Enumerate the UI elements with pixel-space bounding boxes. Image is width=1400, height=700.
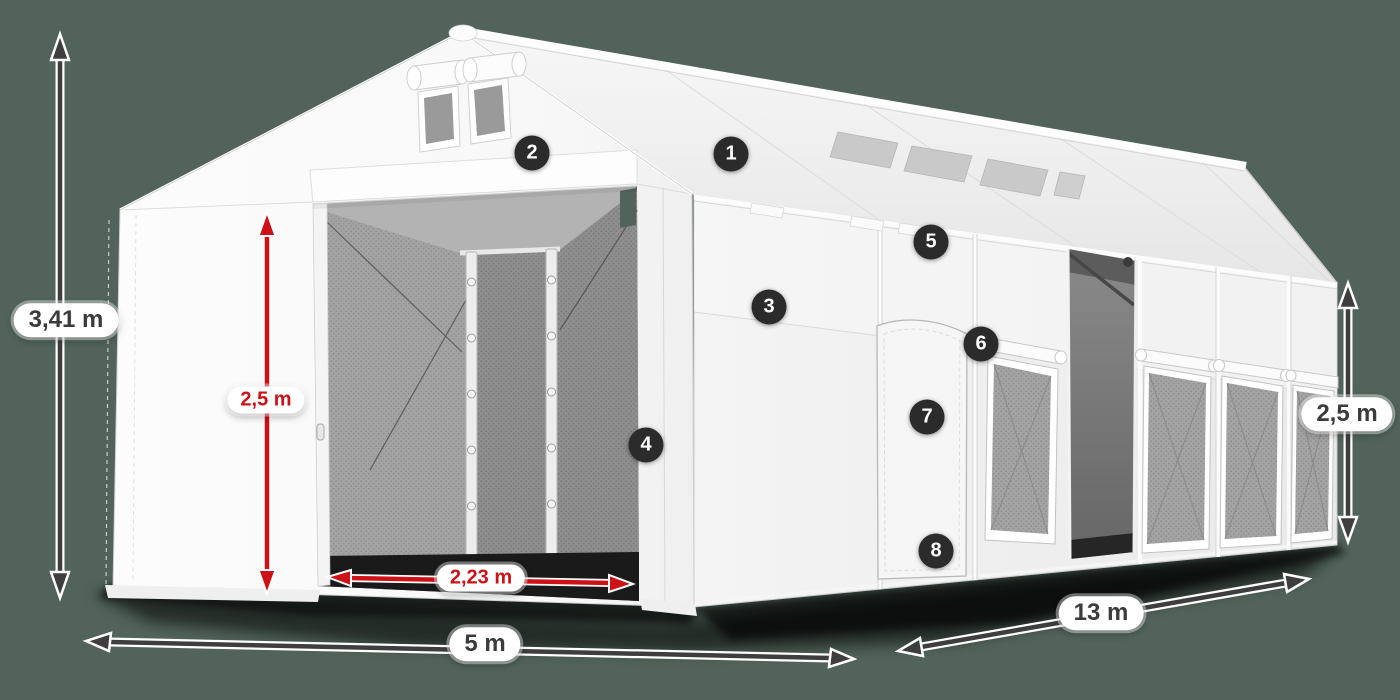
- peak-cap: [449, 25, 477, 41]
- front-entrance-interior: [313, 186, 639, 601]
- product-diagram: 3,41 m 2,5 m 2,23 m 5 m 13 m 2,5 m 1 2 3…: [0, 0, 1400, 700]
- label-entrance-width: 2,23 m: [437, 565, 525, 592]
- see-through-opening: [620, 188, 636, 228]
- label-tent-width: 5 m: [449, 627, 520, 661]
- feature-marker-5: 5: [914, 225, 949, 260]
- feature-marker-6: 6: [964, 327, 999, 362]
- feature-marker-1: 1: [714, 137, 749, 172]
- label-entrance-height: 2,5 m: [227, 387, 304, 414]
- feature-marker-2: 2: [515, 136, 550, 171]
- feature-marker-4: 4: [629, 428, 664, 463]
- side-windows-far: [1136, 349, 1339, 553]
- feature-marker-7: 7: [910, 400, 945, 435]
- feature-marker-3: 3: [752, 290, 787, 325]
- door-handle: [317, 424, 324, 440]
- label-tent-length: 13 m: [1059, 596, 1144, 630]
- label-total-height: 3,41 m: [14, 303, 119, 337]
- tent-illustration: [0, 0, 1400, 700]
- side-window-near: [983, 338, 1067, 544]
- side-door-opening: [1068, 249, 1136, 559]
- feature-marker-8: 8: [919, 534, 954, 569]
- label-side-height: 2,5 m: [1301, 397, 1392, 431]
